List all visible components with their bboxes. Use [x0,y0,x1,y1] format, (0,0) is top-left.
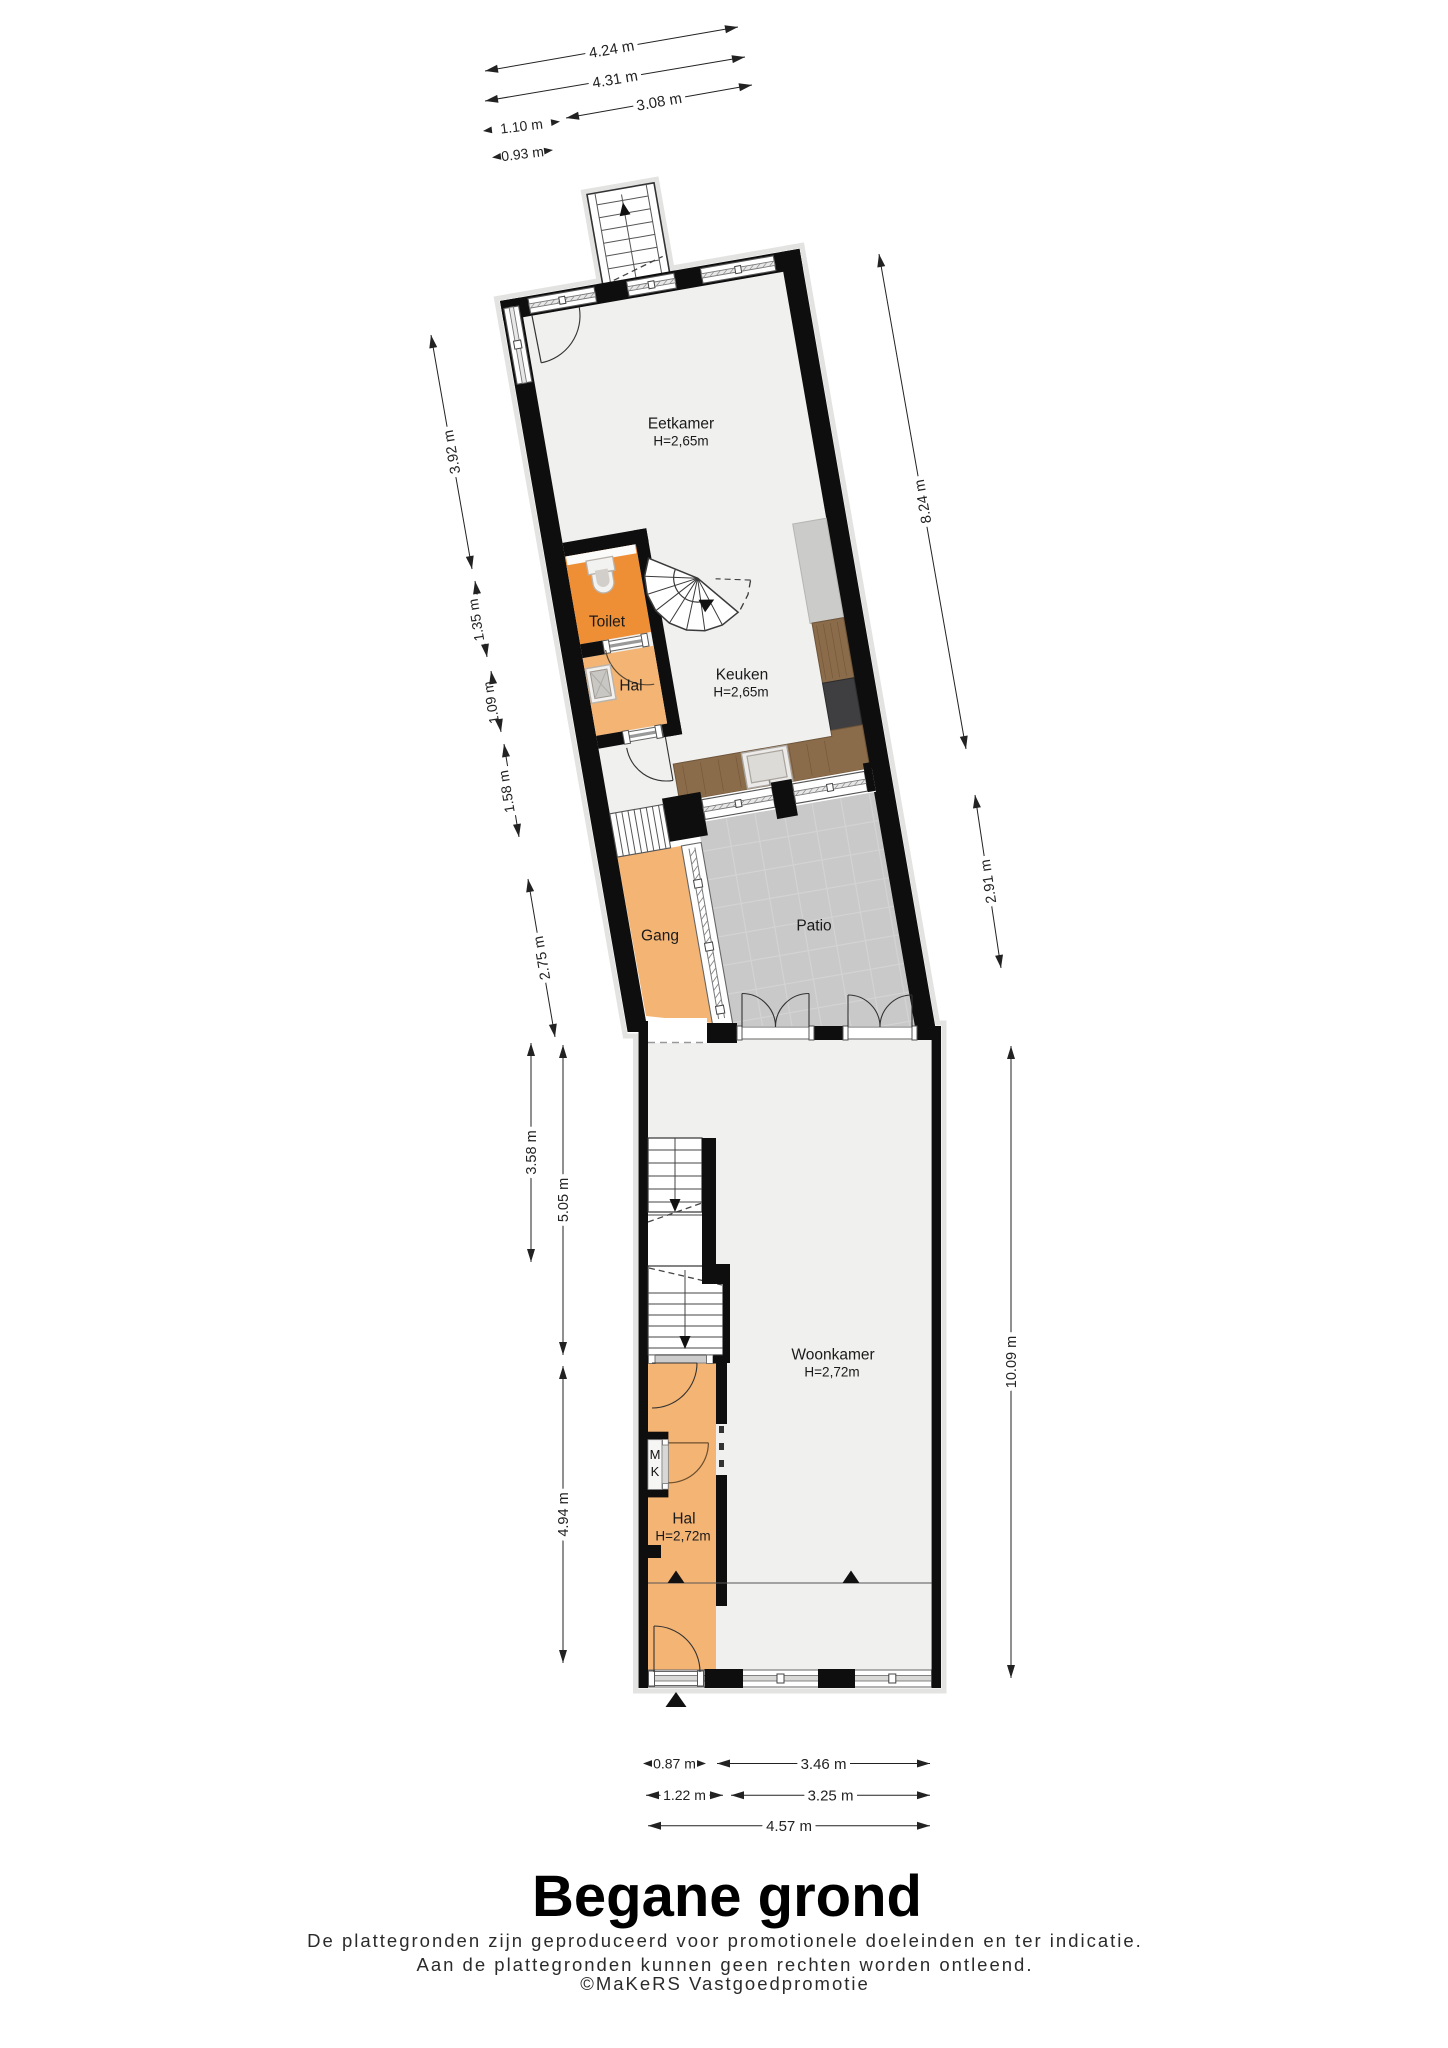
svg-text:Gang: Gang [641,927,679,944]
svg-text:Aan de plattegronden kunnen ge: Aan de plattegronden kunnen geen rechten… [417,1954,1034,1975]
svg-text:0.87 m: 0.87 m [653,1755,696,1771]
svg-text:De plattegronden zijn geproduc: De plattegronden zijn geproduceerd voor … [307,1930,1143,1951]
svg-text:10.09 m: 10.09 m [1004,1336,1020,1388]
svg-text:5.05 m: 5.05 m [556,1178,572,1222]
svg-text:3.46 m: 3.46 m [801,1756,847,1773]
svg-text:H=2,65m: H=2,65m [713,685,768,700]
svg-text:H=2,72m: H=2,72m [655,1529,710,1544]
svg-text:4.94 m: 4.94 m [556,1492,572,1536]
svg-text:Toilet: Toilet [589,613,626,630]
svg-text:H=2,72m: H=2,72m [804,1365,859,1380]
svg-text:Hal: Hal [619,677,642,694]
svg-text:K: K [651,1464,660,1479]
svg-text:Keuken: Keuken [716,666,769,683]
svg-text:3.58 m: 3.58 m [524,1130,540,1174]
svg-text:4.57 m: 4.57 m [766,1818,812,1835]
svg-text:3.25 m: 3.25 m [808,1788,854,1805]
svg-text:©MaKeRS Vastgoedpromotie: ©MaKeRS Vastgoedpromotie [580,1973,870,1994]
svg-text:Begane grond: Begane grond [532,1864,922,1929]
svg-text:Patio: Patio [796,917,831,934]
svg-text:Hal: Hal [672,1510,695,1527]
svg-text:M: M [650,1447,661,1462]
svg-text:1.22 m: 1.22 m [663,1787,706,1803]
svg-text:H=2,65m: H=2,65m [653,434,708,449]
svg-text:Woonkamer: Woonkamer [791,1346,874,1363]
svg-text:Eetkamer: Eetkamer [648,415,714,432]
